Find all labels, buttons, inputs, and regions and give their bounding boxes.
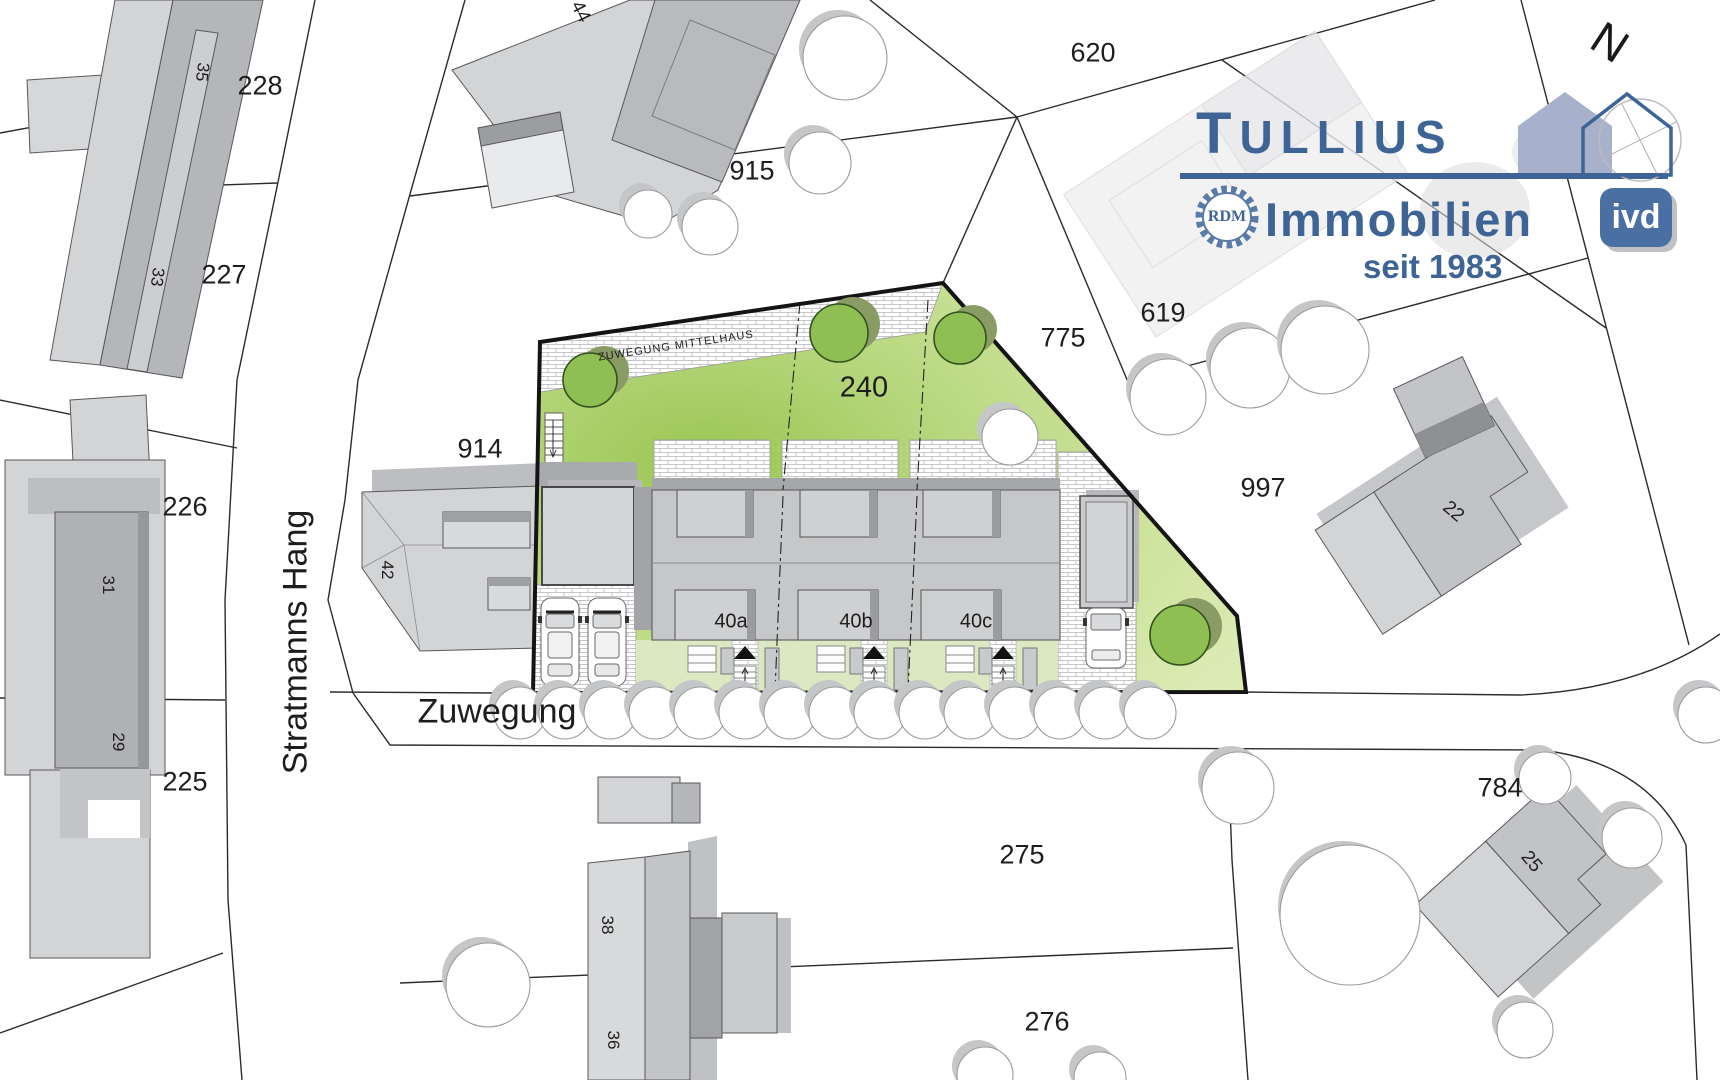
parcel-label-225: 225	[162, 767, 207, 798]
unit-label-40b: 40b	[839, 611, 872, 634]
unit-label-40a: 40a	[714, 611, 747, 634]
logo-line2: Immobilien	[1265, 192, 1533, 247]
house-label-38: 38	[597, 916, 617, 935]
parcel-label-620: 620	[1070, 38, 1115, 69]
parcel-label-226: 226	[162, 492, 207, 523]
parcel-label-228: 228	[237, 71, 282, 102]
parcel-label-784: 784	[1477, 773, 1522, 804]
site-plan: 228 227 226 225 914 915 620 619 775 240 …	[0, 0, 1720, 1080]
logo-watermark-shapes	[1064, 31, 1568, 337]
parcel-label-240: 240	[840, 372, 888, 405]
boundary-775-620	[943, 117, 1017, 283]
boundary-620-west	[870, 0, 1017, 117]
garage	[542, 487, 634, 585]
street-label-zuwegung: Zuwegung	[418, 693, 577, 732]
house-label-31: 31	[98, 576, 118, 595]
rdm-seal-label: RDM	[1208, 208, 1246, 226]
unit-label-40c: 40c	[960, 611, 992, 634]
terrace-40b	[782, 440, 898, 483]
house-label-33: 33	[146, 266, 168, 287]
site-plan-drawing	[0, 0, 1720, 1080]
parcel-label-914: 914	[457, 434, 502, 465]
parcel-label-915: 915	[729, 156, 774, 187]
terrace-40a	[654, 440, 770, 483]
outdoor-stair-west	[545, 413, 563, 463]
logo-brand-rest: ULLIUS	[1239, 111, 1453, 163]
boundary-225-south	[0, 953, 223, 1033]
building-31-29	[5, 395, 165, 958]
house-label-36: 36	[603, 1031, 623, 1050]
building-35-33	[27, 0, 263, 378]
house-label-42: 42	[377, 561, 397, 580]
logo-brand-initial: T	[1196, 101, 1239, 166]
boundary-east-long	[1521, 0, 1689, 645]
parcel-label-276: 276	[1024, 1007, 1069, 1038]
street-label-stratmanns-hang: Stratmanns Hang	[277, 510, 316, 775]
parcel-label-275: 275	[999, 840, 1044, 871]
house-label-35: 35	[191, 61, 213, 82]
logo-since: seit 1983	[1363, 248, 1502, 286]
building-42	[362, 463, 545, 651]
parked-car-2	[585, 598, 629, 686]
house-label-29: 29	[108, 733, 128, 752]
parked-car-1	[538, 598, 582, 686]
house-icon-filled	[1518, 92, 1612, 173]
parcel-label-619: 619	[1140, 298, 1185, 329]
parcel-label-997: 997	[1240, 473, 1285, 504]
parcel-label-775: 775	[1040, 323, 1085, 354]
logo-brand: TULLIUS	[1196, 100, 1454, 167]
development-parcel	[520, 270, 1260, 700]
zuwegung-north-edge-east	[1246, 634, 1720, 695]
ivd-badge: ivd	[1600, 188, 1672, 247]
parcel-label-227: 227	[201, 260, 246, 291]
